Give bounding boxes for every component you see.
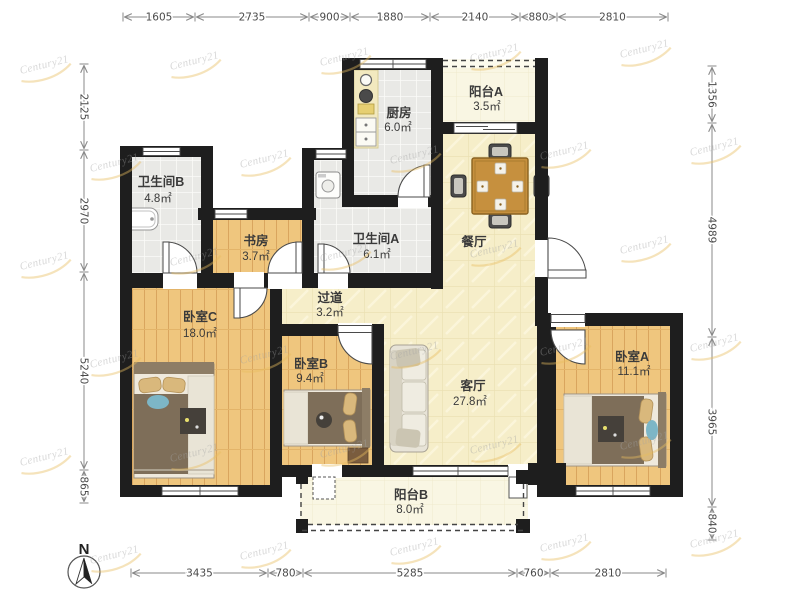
dim-label: 2125 bbox=[77, 94, 89, 121]
room-area: 8.0㎡ bbox=[396, 503, 424, 516]
century21-watermark: Century21 bbox=[238, 147, 293, 179]
dim-label: 1605 bbox=[146, 12, 173, 24]
century21-watermark: Century21 bbox=[618, 37, 673, 69]
svg-text:Century21: Century21 bbox=[619, 233, 670, 257]
century21-watermark: Century21 bbox=[618, 233, 673, 265]
room-label: 卧室A bbox=[615, 349, 649, 364]
room-area: 27.8㎡ bbox=[453, 395, 487, 408]
room-area: 11.1㎡ bbox=[617, 365, 651, 378]
room-label: 卧室C bbox=[183, 309, 217, 324]
century21-watermark: Century21 bbox=[18, 53, 73, 85]
century21-watermark: Century21 bbox=[688, 331, 743, 363]
room-label: 客厅 bbox=[459, 378, 486, 393]
dim-label: 1880 bbox=[377, 12, 404, 24]
dim-label: 840 bbox=[705, 513, 717, 533]
dimension-top-row: 1605 2735 900 1880 2140 880 2810 bbox=[123, 12, 668, 24]
room-area: 9.4㎡ bbox=[296, 372, 324, 385]
century21-watermark: Century21 bbox=[688, 135, 743, 167]
dim-label: 2810 bbox=[595, 568, 622, 580]
svg-text:Century21: Century21 bbox=[19, 445, 70, 469]
svg-text:Century21: Century21 bbox=[169, 49, 220, 73]
century21-watermark: Century21 bbox=[18, 445, 73, 477]
kitchen-counter-icon bbox=[354, 70, 378, 148]
room-area: 4.8㎡ bbox=[144, 192, 172, 205]
dim-label: 780 bbox=[275, 568, 295, 580]
dim-label: 4989 bbox=[705, 217, 717, 244]
room-area: 18.0㎡ bbox=[183, 327, 217, 340]
room-area: 3.2㎡ bbox=[316, 306, 344, 319]
dim-label: 900 bbox=[319, 12, 339, 24]
window bbox=[316, 150, 346, 159]
century21-watermark: Century21 bbox=[538, 531, 593, 563]
dim-label: 5285 bbox=[397, 568, 424, 580]
room-area: 3.7㎡ bbox=[242, 250, 270, 263]
svg-text:Century21: Century21 bbox=[239, 539, 290, 563]
dim-label: 3965 bbox=[705, 409, 717, 436]
dim-label: 2810 bbox=[599, 12, 626, 24]
svg-text:Century21: Century21 bbox=[619, 37, 670, 61]
dim-label: 1356 bbox=[705, 81, 717, 108]
room-label: 阳台B bbox=[394, 487, 428, 502]
sink-icon bbox=[361, 75, 372, 86]
sliding-door bbox=[454, 123, 517, 133]
window bbox=[215, 210, 247, 219]
svg-text:Century21: Century21 bbox=[689, 331, 740, 355]
svg-text:Century21: Century21 bbox=[89, 543, 140, 567]
window bbox=[143, 148, 180, 156]
balcony-door-leaf bbox=[313, 477, 335, 499]
window bbox=[360, 60, 426, 69]
window bbox=[576, 487, 650, 496]
century21-watermark: Century21 bbox=[388, 535, 443, 567]
stove-icon bbox=[360, 90, 373, 103]
dimension-right-column: 1356 4989 3965 840 bbox=[705, 66, 717, 540]
svg-text:Century21: Century21 bbox=[19, 53, 70, 77]
century21-watermark: Century21 bbox=[18, 249, 73, 281]
century21-watermark: Century21 bbox=[688, 527, 743, 559]
svg-text:Century21: Century21 bbox=[239, 147, 290, 171]
entrance-door-arc bbox=[548, 238, 586, 278]
dim-label: 865 bbox=[77, 476, 89, 496]
room-label: 书房 bbox=[243, 233, 268, 248]
dim-label: 2735 bbox=[239, 12, 266, 24]
svg-text:Century21: Century21 bbox=[19, 249, 70, 273]
window bbox=[413, 467, 508, 476]
room-label: 阳台A bbox=[469, 84, 503, 99]
floorplan-svg: 卫生间B 4.8㎡ 厨房 6.0㎡ 阳台A 3.5㎡ 书房 3.7㎡ 卫生间A … bbox=[0, 0, 800, 600]
century21-watermark: Century21 bbox=[238, 539, 293, 571]
floorplan-image: 卫生间B 4.8㎡ 厨房 6.0㎡ 阳台A 3.5㎡ 书房 3.7㎡ 卫生间A … bbox=[0, 0, 800, 600]
window bbox=[162, 487, 238, 496]
dim-label: 2140 bbox=[462, 12, 489, 24]
dim-label: 760 bbox=[523, 568, 543, 580]
dim-label: 3435 bbox=[186, 568, 213, 580]
dimension-left-column: 2125 2970 5240 865 bbox=[77, 64, 89, 503]
room-label: 卧室B bbox=[294, 356, 328, 371]
room-label: 厨房 bbox=[386, 105, 411, 120]
washer-icon bbox=[316, 172, 340, 198]
svg-text:Century21: Century21 bbox=[689, 135, 740, 159]
dimension-bottom-row: 3435 780 5285 760 2810 bbox=[131, 568, 666, 580]
svg-text:Century21: Century21 bbox=[389, 535, 440, 559]
room-area: 3.5㎡ bbox=[473, 100, 501, 113]
room-label: 过道 bbox=[317, 290, 343, 305]
dim-label: 880 bbox=[528, 12, 548, 24]
dim-label: 2970 bbox=[77, 198, 89, 225]
svg-text:Century21: Century21 bbox=[539, 531, 590, 555]
century21-watermark: Century21 bbox=[168, 49, 223, 81]
room-area: 6.0㎡ bbox=[384, 121, 412, 134]
bed-icon-bedroom-a bbox=[564, 392, 666, 468]
dim-label: 5240 bbox=[77, 358, 89, 385]
room-label: 卫生间B bbox=[138, 174, 185, 189]
